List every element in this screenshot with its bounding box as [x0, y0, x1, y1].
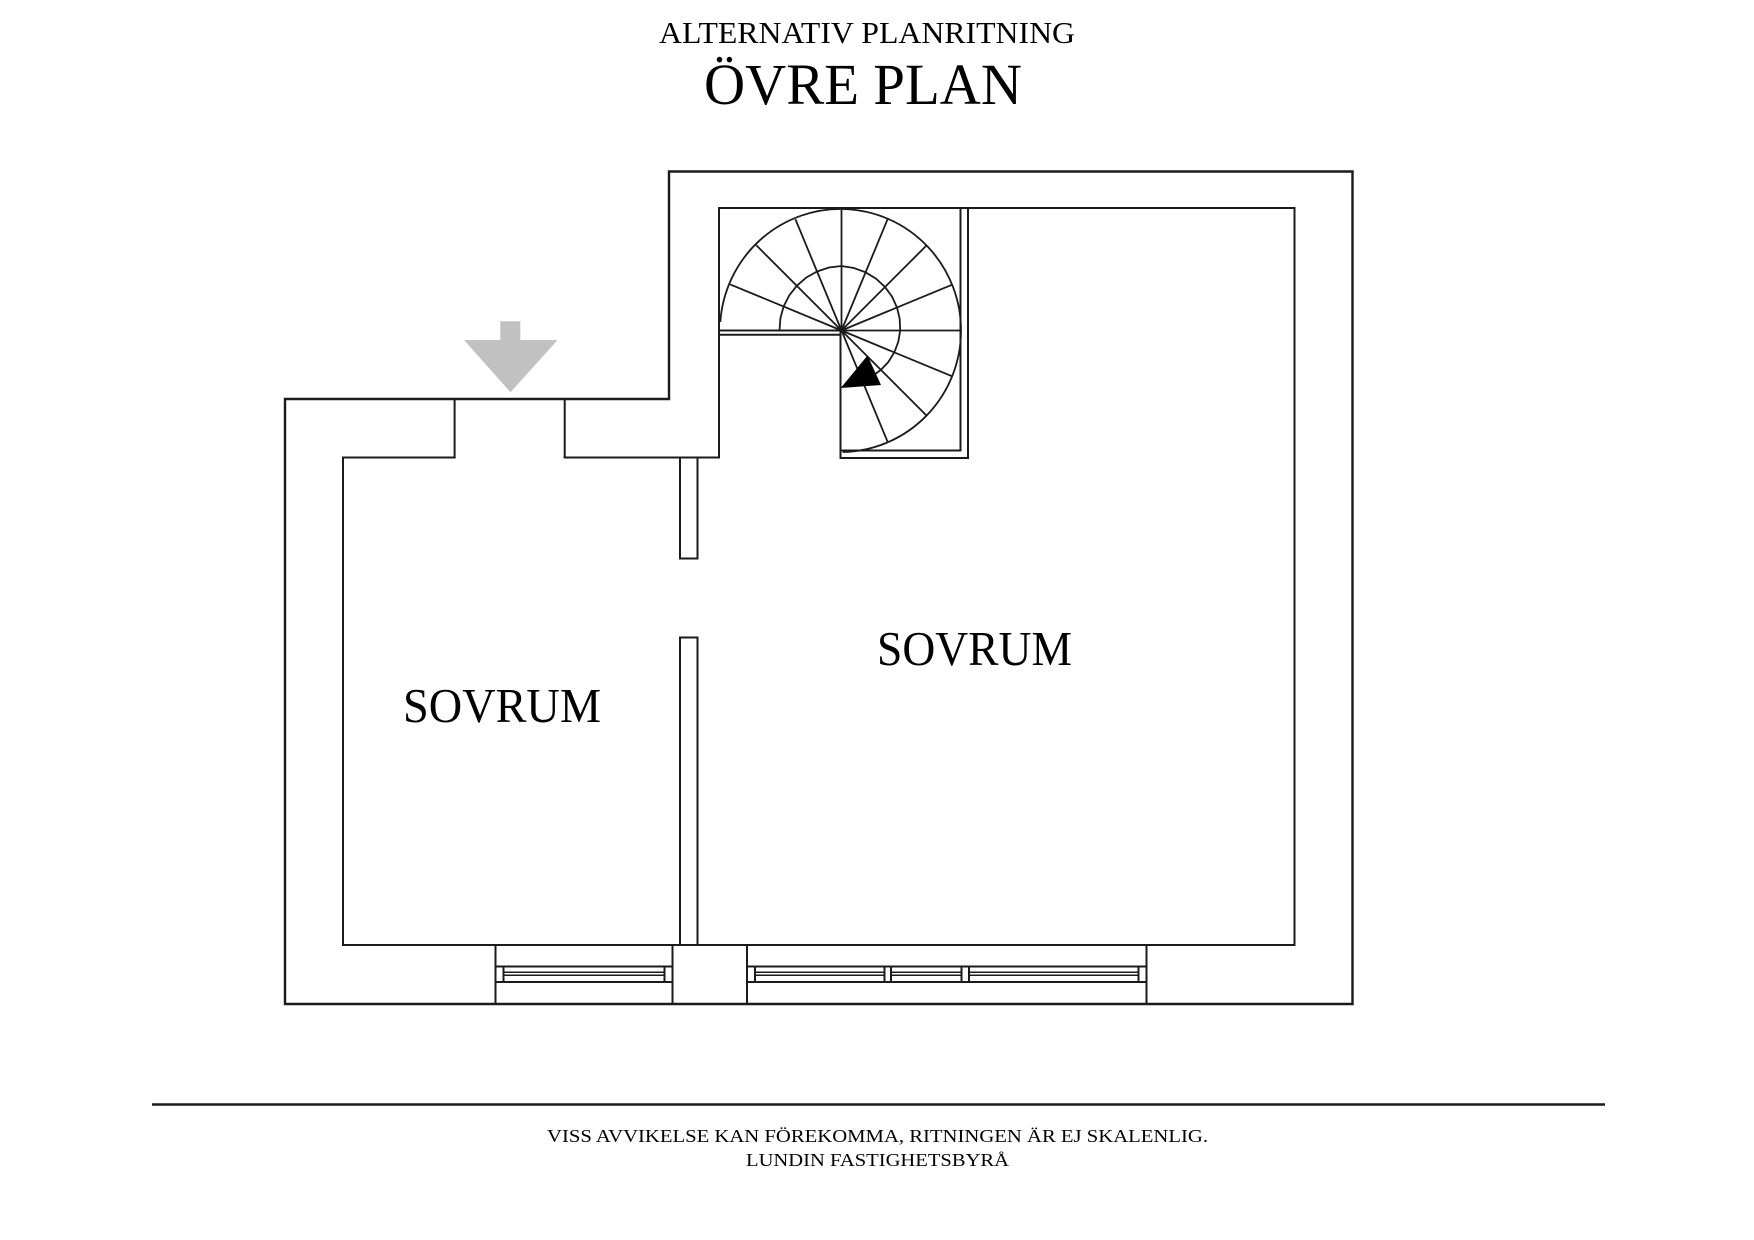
svg-text:LUNDIN FASTIGHETSBYRÅ: LUNDIN FASTIGHETSBYRÅ [746, 1150, 1009, 1170]
svg-text:VISS AVVIKELSE KAN FÖREKOMMA,: VISS AVVIKELSE KAN FÖREKOMMA, RITNINGEN … [547, 1126, 1208, 1146]
svg-text:SOVRUM: SOVRUM [877, 621, 1072, 676]
svg-text:ÖVRE PLAN: ÖVRE PLAN [704, 52, 1022, 117]
svg-text:ALTERNATIV PLANRITNING: ALTERNATIV PLANRITNING [659, 15, 1075, 50]
svg-text:SOVRUM: SOVRUM [403, 678, 601, 733]
